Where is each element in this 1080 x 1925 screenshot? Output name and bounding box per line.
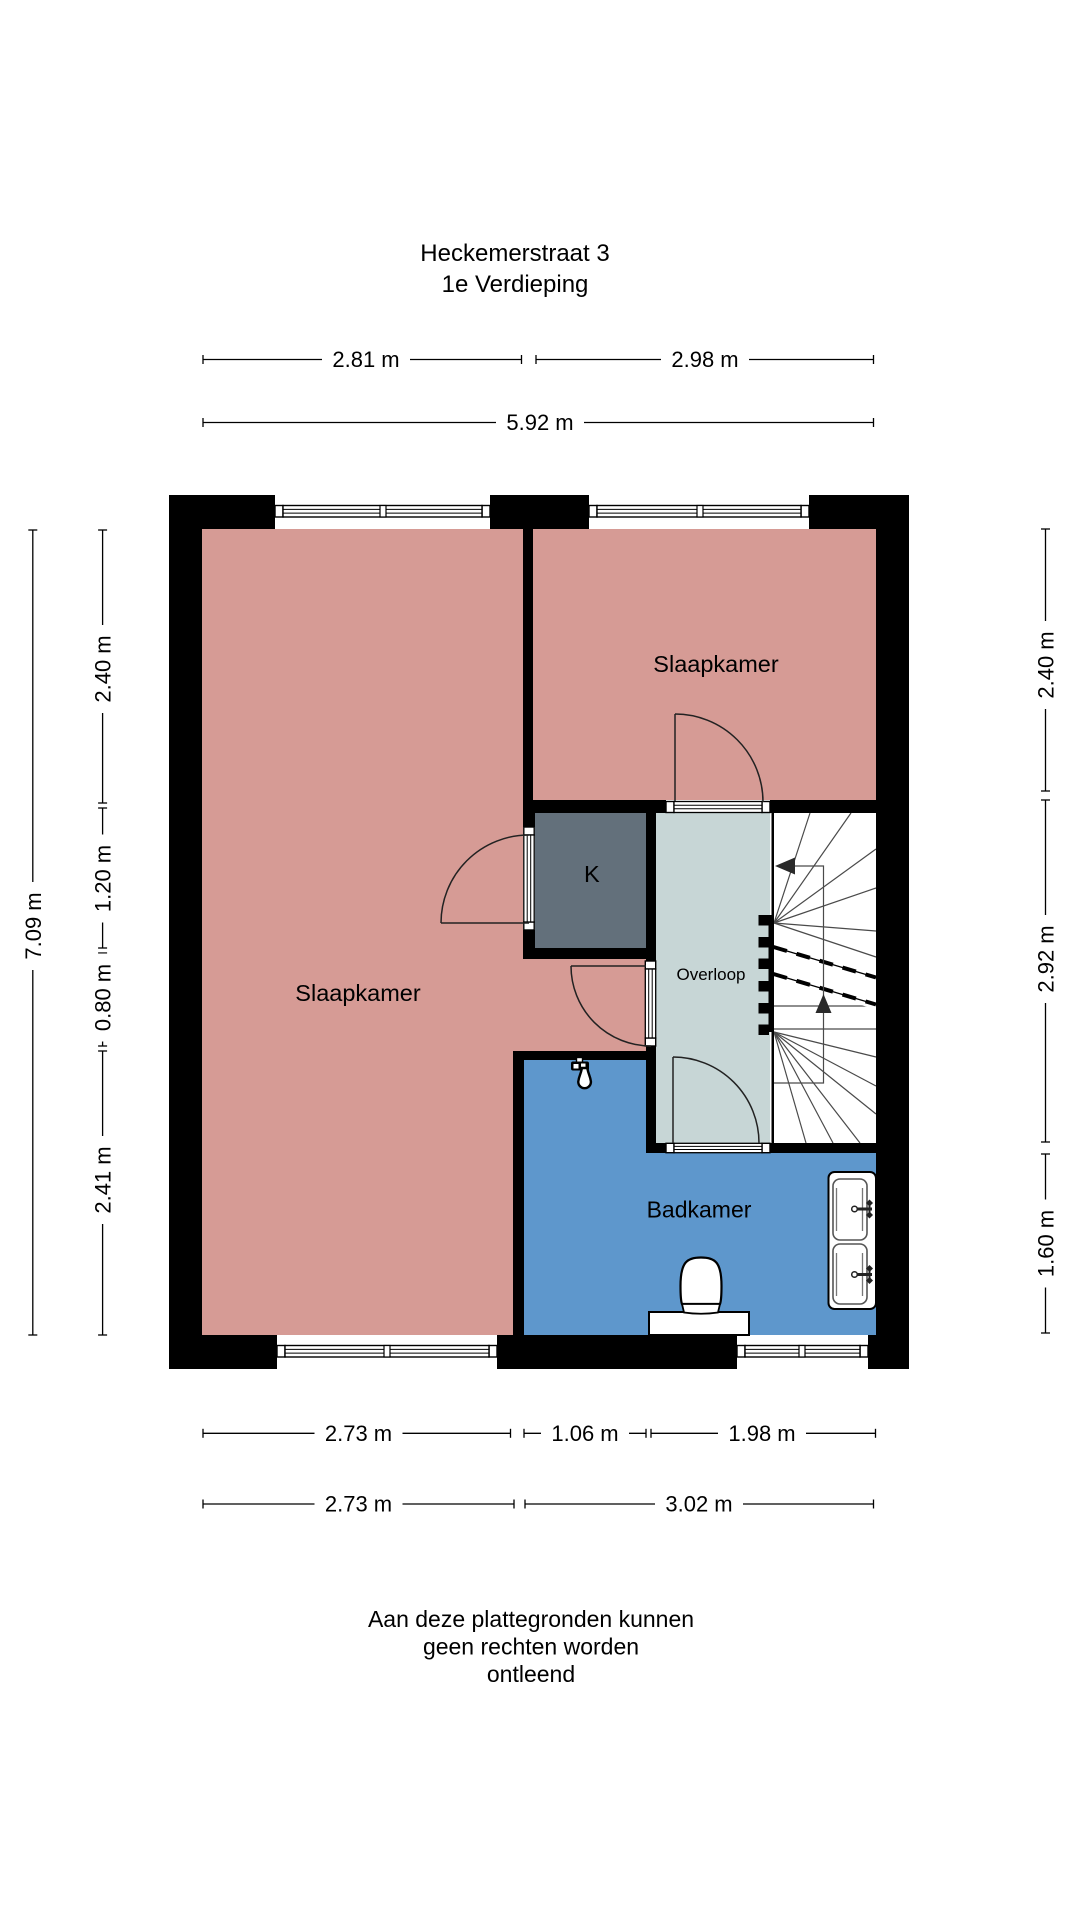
svg-text:Slaapkamer: Slaapkamer: [653, 651, 779, 677]
svg-text:7.09 m: 7.09 m: [21, 892, 46, 959]
svg-text:3.02 m: 3.02 m: [665, 1492, 732, 1517]
svg-text:1e Verdieping: 1e Verdieping: [442, 271, 589, 298]
svg-text:0.80 m: 0.80 m: [91, 964, 116, 1031]
svg-text:5.92 m: 5.92 m: [506, 410, 573, 435]
svg-text:1.98 m: 1.98 m: [728, 1421, 795, 1446]
svg-text:2.73 m: 2.73 m: [325, 1421, 392, 1446]
svg-text:2.98 m: 2.98 m: [671, 347, 738, 372]
svg-text:Badkamer: Badkamer: [647, 1197, 752, 1223]
svg-text:Slaapkamer: Slaapkamer: [295, 980, 421, 1006]
svg-text:2.81 m: 2.81 m: [332, 347, 399, 372]
svg-text:2.73 m: 2.73 m: [325, 1492, 392, 1517]
svg-text:2.41 m: 2.41 m: [91, 1146, 116, 1213]
svg-text:Heckemerstraat 3: Heckemerstraat 3: [420, 240, 609, 267]
svg-text:2.40 m: 2.40 m: [91, 635, 116, 702]
svg-text:geen rechten worden: geen rechten worden: [423, 1634, 639, 1660]
svg-text:1.20 m: 1.20 m: [91, 845, 116, 912]
svg-text:K: K: [584, 861, 600, 887]
svg-text:1.06 m: 1.06 m: [551, 1421, 618, 1446]
svg-text:1.60 m: 1.60 m: [1034, 1210, 1059, 1277]
svg-text:2.92 m: 2.92 m: [1034, 925, 1059, 992]
svg-text:ontleend: ontleend: [487, 1661, 575, 1687]
svg-text:Overloop: Overloop: [677, 965, 746, 984]
svg-text:Aan deze plattegronden kunnen: Aan deze plattegronden kunnen: [368, 1606, 694, 1632]
svg-text:2.40 m: 2.40 m: [1034, 631, 1059, 698]
